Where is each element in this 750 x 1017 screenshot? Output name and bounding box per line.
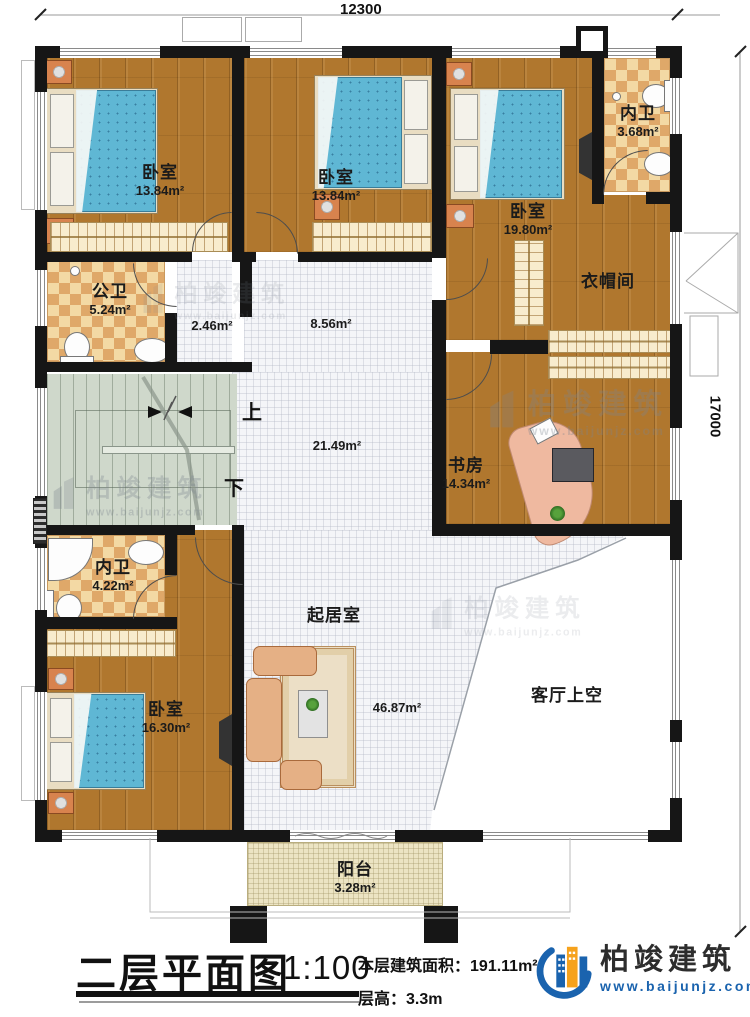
- sofa: [246, 678, 282, 762]
- window: [35, 270, 47, 326]
- brand-logo: 柏竣建筑 www.baijunjz.com: [536, 939, 750, 1001]
- label-hall-main-area: 21.49m²: [313, 438, 361, 453]
- window: [35, 92, 47, 210]
- floor-area-text: 本层建筑面积：191.11m²: [358, 952, 538, 976]
- dimension-top: 12300: [340, 1, 382, 18]
- wall: [298, 252, 432, 262]
- label-corridor-area: 2.46m²: [191, 318, 232, 333]
- wardrobe: [312, 222, 432, 252]
- pillow: [50, 742, 72, 782]
- stairs-up-label: 上: [242, 396, 262, 425]
- window: [35, 548, 47, 610]
- wardrobe: [548, 330, 674, 353]
- wall-grille: [33, 498, 47, 544]
- armchair: [253, 646, 317, 676]
- window: [35, 388, 47, 496]
- stairs-down-label: 下: [224, 472, 244, 501]
- label-living-area: 46.87m²: [373, 700, 421, 715]
- stair-rail: [102, 446, 235, 454]
- plant: [306, 698, 319, 711]
- pillow: [454, 146, 478, 192]
- window: [35, 692, 47, 800]
- pillow: [50, 152, 74, 206]
- wall: [35, 525, 195, 535]
- window: [670, 78, 682, 134]
- title-underline-2: [79, 1001, 359, 1003]
- window: [483, 830, 648, 842]
- tv: [579, 132, 592, 180]
- window: [670, 742, 682, 798]
- label-cloakroom: 衣帽间: [581, 272, 635, 292]
- bay-window-outline: [21, 60, 35, 210]
- window: [452, 46, 560, 58]
- nightstand: [46, 60, 72, 84]
- brand-url: www.baijunjz.com: [600, 978, 750, 994]
- armchair: [280, 760, 322, 790]
- pillow: [50, 698, 72, 738]
- floor-height-text: 层高：3.3m: [358, 985, 442, 1009]
- window: [60, 46, 160, 58]
- pillow: [50, 94, 74, 148]
- dimension-right: 17000: [706, 396, 723, 438]
- label-hall-upper-area: 8.56m²: [310, 316, 351, 331]
- label-bath-top: 内卫 3.68m²: [617, 104, 658, 139]
- wall: [232, 46, 244, 262]
- nightstand: [48, 792, 74, 814]
- wall: [490, 340, 548, 354]
- label-void: 客厅上空: [531, 686, 603, 706]
- floor-drain: [612, 92, 621, 101]
- window: [608, 46, 656, 58]
- window: [250, 46, 342, 58]
- wardrobe: [514, 240, 544, 326]
- bay-window-outline: [182, 17, 242, 42]
- label-bedroom1: 卧室 13.84m²: [136, 163, 184, 198]
- pillow: [404, 80, 428, 130]
- computer-monitor: [552, 448, 594, 482]
- wall: [35, 252, 192, 262]
- window: [670, 560, 682, 720]
- title-block: 二层平面图 1:100 本层建筑面积：191.11m² 层高：3.3m 柏竣建筑…: [0, 935, 750, 1017]
- wall: [592, 46, 604, 194]
- bay-window-outline: [245, 17, 302, 42]
- label-balcony: 阳台 3.28m²: [334, 860, 375, 895]
- wall: [432, 524, 682, 536]
- label-bedroom2: 卧室 13.84m²: [312, 168, 360, 203]
- pillow: [404, 134, 428, 184]
- wall: [35, 362, 252, 372]
- label-public-bath: 公卫 5.24m²: [89, 282, 130, 317]
- wall: [240, 262, 252, 317]
- label-study: 书房 14.34m²: [442, 456, 490, 491]
- bay-window-outline: [21, 686, 35, 801]
- label-bedroom3: 卧室 19.80m²: [504, 202, 552, 237]
- tv: [219, 714, 232, 766]
- plant: [550, 506, 565, 521]
- pillow: [454, 94, 478, 140]
- window: [670, 428, 682, 500]
- nightstand: [446, 204, 474, 228]
- title-underline: [76, 991, 359, 997]
- sliding-door: [290, 830, 395, 842]
- nightstand: [48, 668, 74, 690]
- nightstand: [446, 62, 472, 86]
- label-bedroom4: 卧室 16.30m²: [142, 700, 190, 735]
- wardrobe: [46, 630, 176, 657]
- wall: [432, 46, 446, 258]
- window: [62, 830, 157, 842]
- chimney: [576, 26, 608, 56]
- wall: [646, 192, 682, 204]
- wall: [165, 535, 177, 575]
- window: [670, 232, 682, 324]
- label-bath-lower: 内卫 4.22m²: [92, 558, 133, 593]
- floor-plan: 12300 17000 卧室 13.84m² 卧室 13.84m² 卧室 19.…: [0, 0, 750, 1017]
- corridor-floor: [177, 260, 232, 362]
- brand-logo-icon: [536, 939, 594, 1001]
- wall: [244, 252, 256, 262]
- wardrobe: [548, 356, 674, 379]
- brand-name: 柏竣建筑: [600, 946, 750, 975]
- floor-drain: [70, 266, 80, 276]
- label-living: 起居室: [307, 606, 361, 626]
